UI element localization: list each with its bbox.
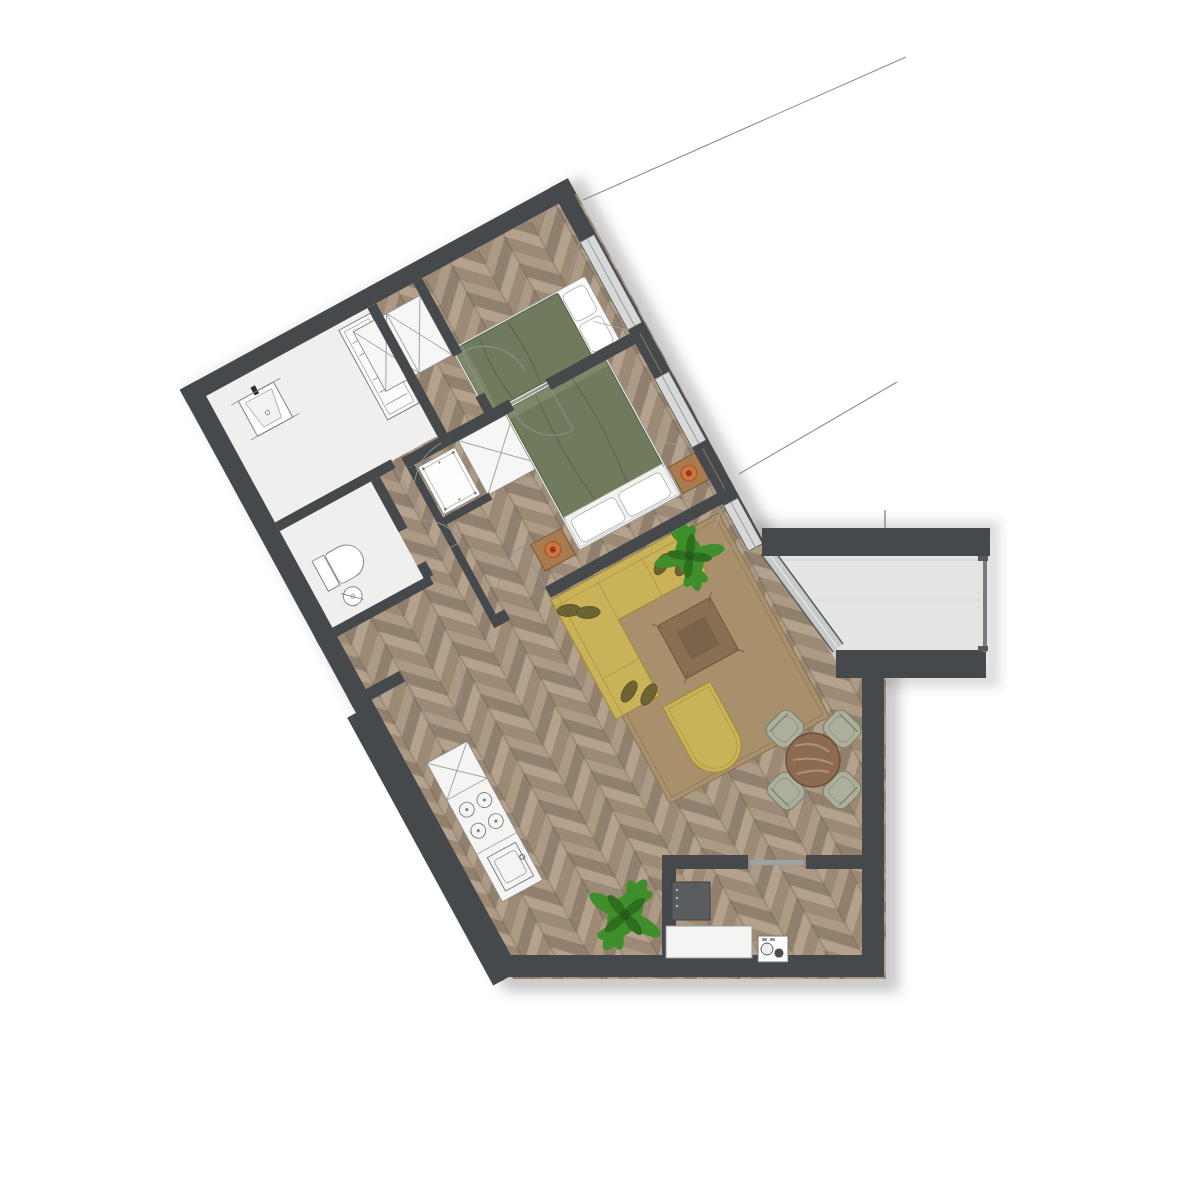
wall-right	[862, 656, 884, 977]
wall-balcony-top	[762, 528, 990, 556]
storage-sliding-door	[750, 860, 804, 865]
washing-machine-icon	[758, 936, 788, 962]
wall-balcony-bottom	[836, 650, 986, 678]
floor-plan-svg: 2.25	[0, 0, 1200, 1200]
wall-storage-top-b	[806, 855, 866, 869]
storage-counter	[666, 926, 752, 958]
floor-plan-canvas: 2.25	[0, 0, 1200, 1200]
fridge-icon	[672, 882, 710, 920]
leader-line-right	[739, 382, 897, 474]
balcony-railing	[983, 556, 987, 652]
leader-line-top	[583, 57, 906, 200]
dining-table-icon	[786, 733, 840, 787]
